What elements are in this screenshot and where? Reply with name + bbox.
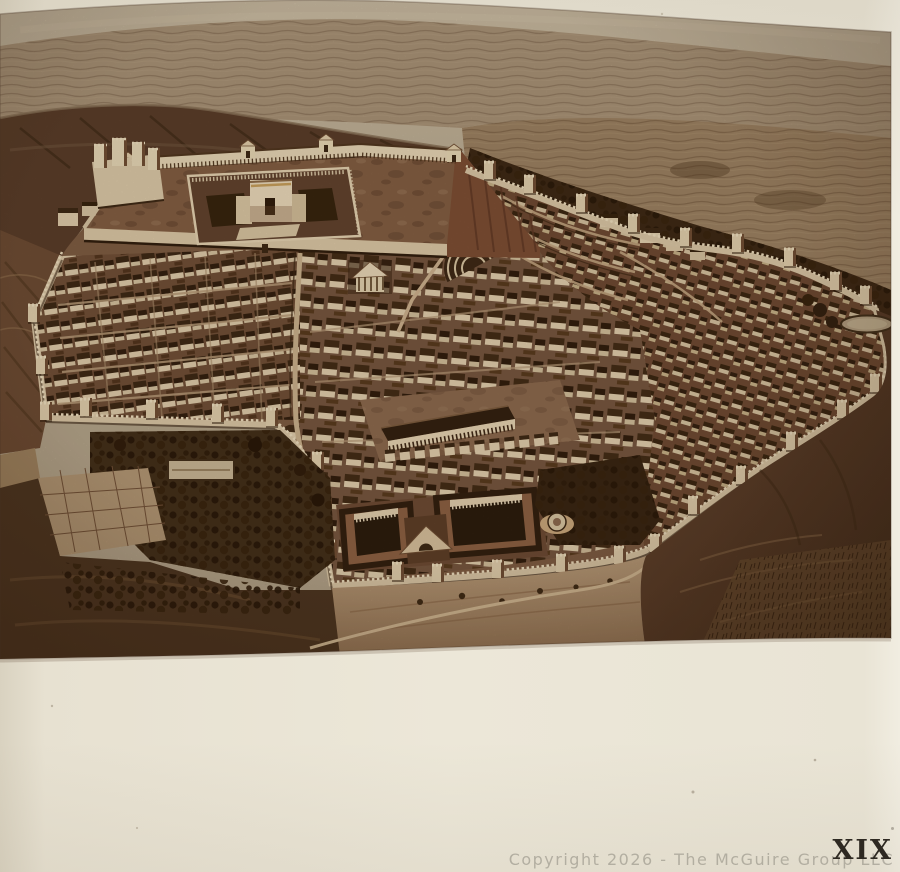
plate-painting	[0, 0, 893, 660]
ink-speck	[891, 827, 894, 830]
book-page: Copyright 2026 - The McGuire Group LLC X…	[0, 0, 900, 872]
plate-number: XIX	[832, 837, 893, 864]
jerusalem-plate-illustration	[0, 0, 900, 872]
